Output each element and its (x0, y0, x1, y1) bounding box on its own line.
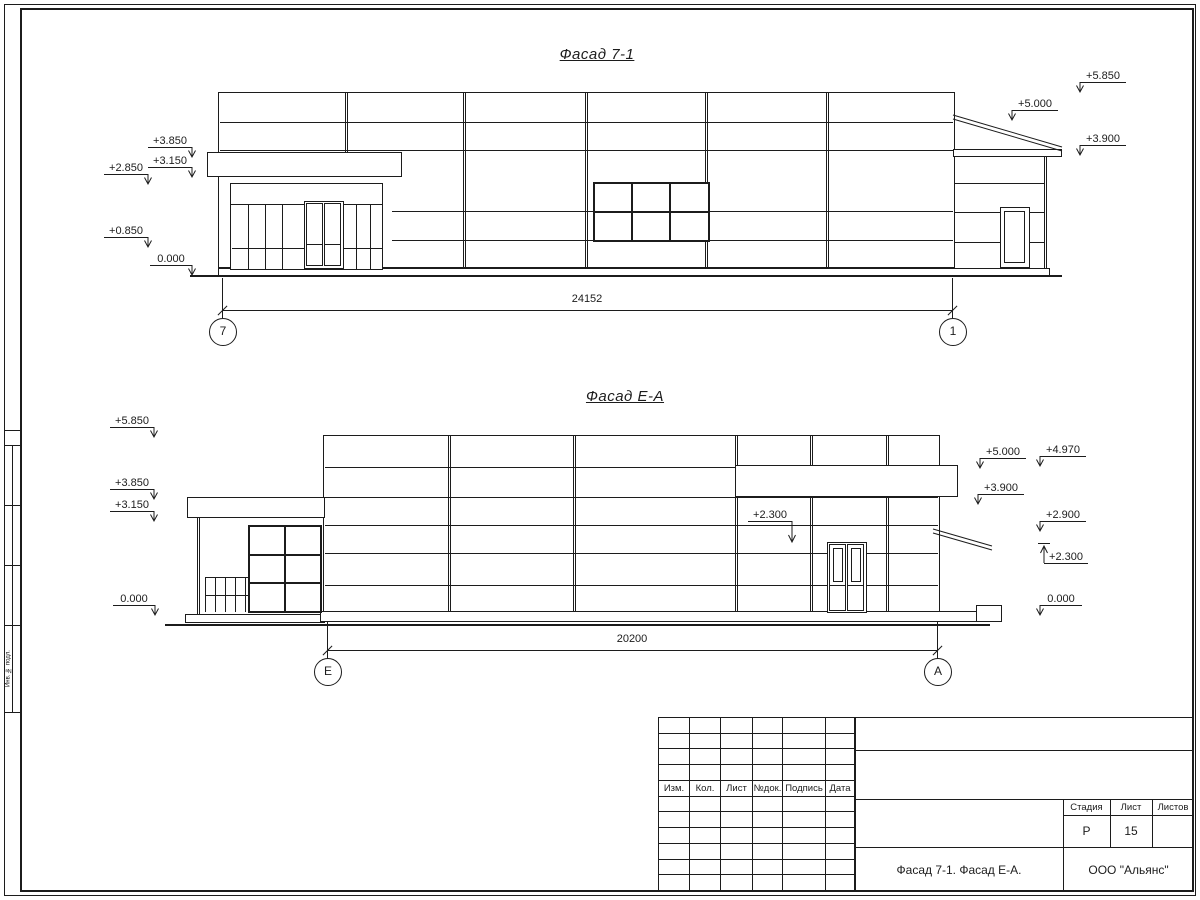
elevation-value: +2.900 (1040, 509, 1086, 521)
revision-cell (753, 749, 783, 765)
facade-e-a-title: Фасад Е-А (475, 388, 775, 405)
elevation-arrow-icon (148, 427, 160, 438)
elevation-arrow-icon (186, 167, 198, 178)
stage-label: Стадия (1063, 799, 1110, 815)
revision-cell (659, 734, 690, 750)
revision-cell (690, 828, 721, 844)
side-door (827, 542, 867, 613)
elevation-value: +4.970 (1040, 444, 1086, 456)
revision-cell (659, 812, 690, 828)
revision-cell (690, 875, 721, 891)
elevation-value: +2.300 (748, 509, 792, 521)
elevation-mark: +3.850 (148, 134, 192, 148)
elevation-mark: +2.300 (748, 508, 792, 522)
revision-cell (721, 797, 753, 813)
revision-cell (721, 749, 753, 765)
drawing-sheet: Инв. № подл. Фасад 7-1 (0, 0, 1200, 900)
elevation-arrow-icon (149, 605, 161, 616)
dimension-value: 20200 (562, 633, 702, 645)
elevation-arrow-icon (1034, 521, 1046, 532)
grid-bubble-e: Е (314, 658, 342, 686)
drawing-title: Фасад 7-1. Фасад Е-А. (855, 847, 1063, 892)
elevation-arrow-icon (142, 174, 154, 185)
revision-cell (783, 765, 826, 781)
side-strip-label: Инв. № подл. (4, 626, 13, 711)
porch-step (976, 605, 1002, 622)
revision-cell (783, 812, 826, 828)
revision-cell (721, 718, 753, 734)
dimension-value: 24152 (517, 293, 657, 305)
panel-joint-line (585, 93, 588, 267)
grid-bubble-a: А (924, 658, 952, 686)
grid-bubble-1: 1 (939, 318, 967, 346)
elevation-value: 0.000 (150, 253, 192, 265)
grid-bubble-7: 7 (209, 318, 237, 346)
revision-cell (826, 875, 855, 891)
elevation-mark: +5.000 (980, 445, 1026, 459)
revision-cell (690, 734, 721, 750)
company-name: ООО "Альянс" (1063, 847, 1194, 892)
revision-cell (826, 828, 855, 844)
elevation-arrow-icon (1074, 145, 1086, 156)
annex-base (185, 614, 325, 623)
revision-header-cell: №док. (753, 781, 783, 797)
sheets-label: Листов (1152, 799, 1194, 815)
annex-canopy (187, 497, 325, 518)
revision-cell (690, 749, 721, 765)
elevation-arrow-icon (1006, 110, 1018, 121)
panel-joint-line (463, 93, 466, 267)
elevation-value: +3.900 (978, 482, 1024, 494)
elevation-arrow-icon (1034, 456, 1046, 467)
revision-cell (721, 812, 753, 828)
elevation-value: 0.000 (1040, 593, 1082, 605)
revision-header-cell: Изм. (659, 781, 690, 797)
storefront (230, 183, 383, 270)
revision-cell (753, 860, 783, 876)
elevation-mark: 0.000 (113, 592, 155, 606)
panel-joint-line (573, 436, 576, 612)
elevation-mark: +2.850 (104, 161, 148, 175)
revision-cell (826, 749, 855, 765)
panel-joint-line (735, 436, 738, 612)
revision-cell (659, 844, 690, 860)
elevation-value: +3.900 (1080, 133, 1126, 145)
elevation-value: +5.000 (980, 446, 1026, 458)
entrance-canopy (207, 152, 402, 177)
entrance-door (304, 201, 344, 269)
revision-cell (721, 844, 753, 860)
revision-header-cell: Дата (826, 781, 855, 797)
revision-cell (826, 812, 855, 828)
revision-cell (659, 860, 690, 876)
elevation-arrow-icon (1038, 543, 1050, 563)
revision-cell (659, 749, 690, 765)
base-band (320, 611, 985, 622)
ground-line (165, 624, 990, 626)
revision-cell (783, 734, 826, 750)
revision-cell (659, 765, 690, 781)
elevation-value: +3.150 (148, 155, 192, 167)
elevation-value: +3.850 (110, 477, 154, 489)
annex-eave (953, 149, 1062, 157)
revision-cell (826, 844, 855, 860)
elevation-mark: +0.850 (104, 224, 148, 238)
revision-cell (690, 797, 721, 813)
revision-cell (783, 797, 826, 813)
revision-cell (753, 734, 783, 750)
elevation-arrow-icon (972, 494, 984, 505)
elevation-value: +5.850 (1080, 70, 1126, 82)
revision-cell (690, 765, 721, 781)
elevation-value: +5.000 (1012, 98, 1058, 110)
elevation-value: +5.850 (110, 415, 154, 427)
elevation-arrow-icon (186, 265, 198, 276)
revision-cell (783, 749, 826, 765)
facade-7-1-title: Фасад 7-1 (447, 46, 747, 63)
panel-joint-line (810, 436, 813, 612)
revision-cell (659, 718, 690, 734)
annex-window (248, 525, 322, 613)
elevation-mark: +5.850 (110, 414, 154, 428)
elevation-value: +0.850 (104, 225, 148, 237)
panel-joint-line (448, 436, 451, 612)
revision-cell (753, 797, 783, 813)
elevation-arrow-icon (148, 511, 160, 522)
revision-cell (753, 718, 783, 734)
elevation-mark: +2.300 (1044, 550, 1088, 564)
panel-joint-line (826, 93, 829, 267)
dimension-line (222, 310, 953, 311)
elevation-mark: +3.900 (1080, 132, 1126, 146)
elevation-arrow-icon (786, 521, 798, 543)
revision-cell (690, 718, 721, 734)
panel-joint-line (886, 436, 889, 612)
revision-cell (721, 765, 753, 781)
revision-cell (783, 844, 826, 860)
elevation-mark: +3.900 (978, 481, 1024, 495)
elevation-mark: +4.970 (1040, 443, 1086, 457)
revision-cell (690, 812, 721, 828)
elevation-arrow-icon (1034, 605, 1046, 616)
parapet-band (735, 465, 958, 497)
elevation-mark: +3.150 (110, 498, 154, 512)
annex-door (1000, 207, 1030, 268)
elevation-value: 0.000 (113, 593, 155, 605)
elevation-arrow-icon (1074, 82, 1086, 93)
revision-cell (753, 812, 783, 828)
panel-joint-line (345, 93, 348, 152)
revision-cell (753, 828, 783, 844)
elevation-mark: +2.900 (1040, 508, 1086, 522)
revision-cell (721, 860, 753, 876)
revision-cell (659, 875, 690, 891)
sheet-value: 15 (1110, 815, 1152, 847)
revision-cell (753, 844, 783, 860)
revision-cell (659, 828, 690, 844)
revision-cell (783, 718, 826, 734)
revision-cell (783, 875, 826, 891)
revision-header-cell: Лист (721, 781, 753, 797)
elevation-mark: +5.850 (1080, 69, 1126, 83)
elevation-mark: +3.150 (148, 154, 192, 168)
revision-cell (721, 875, 753, 891)
elevation-arrow-icon (974, 458, 986, 469)
stage-value: Р (1063, 815, 1110, 847)
elevation-value: +2.300 (1044, 551, 1088, 563)
elevation-value: +3.850 (148, 135, 192, 147)
revision-cell (826, 765, 855, 781)
revision-cell (721, 734, 753, 750)
revision-cell (690, 844, 721, 860)
dimension-line (327, 650, 938, 651)
revision-cell (826, 797, 855, 813)
revision-header-cell: Кол. (690, 781, 721, 797)
sheet-label: Лист (1110, 799, 1152, 815)
elevation-mark: +5.000 (1012, 97, 1058, 111)
elevation-value: +2.850 (104, 162, 148, 174)
revision-cell (753, 875, 783, 891)
revision-cell (826, 860, 855, 876)
revision-cell (826, 734, 855, 750)
revision-table: Изм.Кол.Лист№док.ПодписьДата (658, 717, 855, 892)
revision-cell (659, 797, 690, 813)
elevation-value: +3.150 (110, 499, 154, 511)
revision-cell (721, 828, 753, 844)
revision-cell (753, 765, 783, 781)
elevation-mark: 0.000 (1040, 592, 1082, 606)
elevation-arrow-icon (142, 237, 154, 248)
elevation-mark: +3.850 (110, 476, 154, 490)
revision-cell (783, 860, 826, 876)
revision-cell (783, 828, 826, 844)
revision-header-cell: Подпись (783, 781, 826, 797)
sheets-value (1152, 815, 1194, 847)
revision-cell (690, 860, 721, 876)
revision-cell (826, 718, 855, 734)
elevation-mark: 0.000 (150, 252, 192, 266)
window-grid (593, 182, 710, 242)
